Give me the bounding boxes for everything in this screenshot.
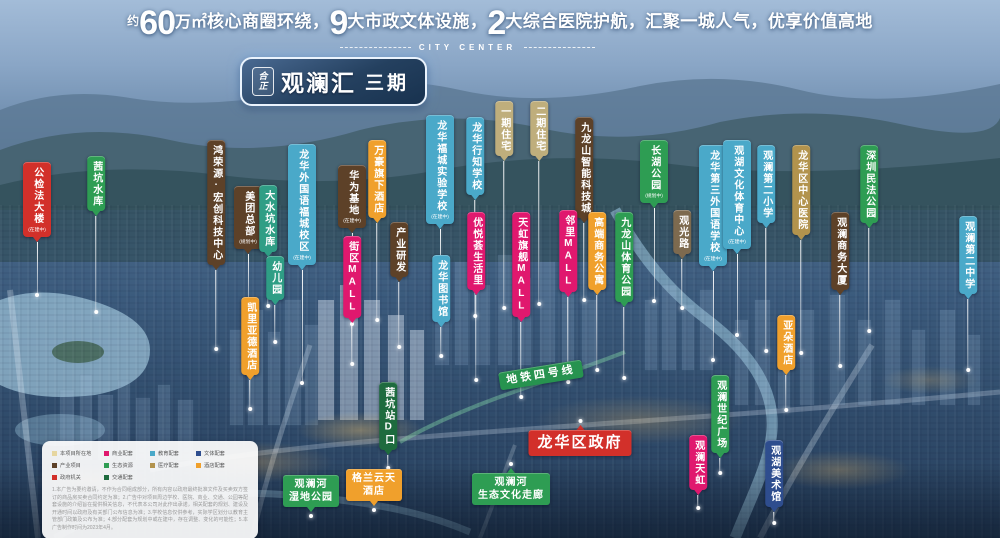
legend-color-swatch bbox=[52, 451, 57, 456]
map-pin: 观光路 bbox=[673, 210, 691, 310]
map-pin-leader-line bbox=[441, 327, 442, 355]
map-pin: 龙华外国语福城校区 (在建中) bbox=[288, 144, 316, 385]
legend-item: 本项目所在地 bbox=[52, 449, 104, 457]
headline-number-2: 2 bbox=[487, 4, 505, 42]
project-title-badge: 合 正 观澜汇 三期 bbox=[240, 57, 427, 106]
map-pin-anchor-dot bbox=[764, 349, 768, 353]
map-pin-text: 观湖美术馆 bbox=[768, 445, 780, 503]
legend-item: 教育配套 bbox=[150, 449, 196, 457]
map-pin-text: 观光路 bbox=[676, 215, 688, 250]
map-pin-anchor-dot bbox=[375, 318, 379, 322]
map-pin-leader-line bbox=[654, 208, 655, 300]
map-pin: 茜坑站D口 bbox=[379, 382, 397, 470]
map-pin: 一期住宅 bbox=[495, 101, 513, 310]
map-pin: 观澜天虹 bbox=[689, 435, 707, 510]
map-pin-anchor-dot bbox=[35, 293, 39, 297]
map-pin-text: 美团总部 bbox=[242, 191, 254, 237]
developer-logo: 合 正 bbox=[252, 67, 274, 96]
map-pin: 街区MALL bbox=[343, 236, 361, 366]
map-pin-leader-line bbox=[399, 282, 400, 346]
map-pin-leader-line bbox=[96, 216, 97, 311]
map-pin-subtext: (在建中) bbox=[728, 240, 746, 245]
legend-color-swatch bbox=[196, 451, 201, 456]
map-pin-anchor-dot bbox=[718, 471, 722, 475]
map-pin-anchor-dot bbox=[680, 306, 684, 310]
legend-color-swatch bbox=[104, 451, 109, 456]
map-pin-label: 观光路 bbox=[673, 210, 691, 254]
map-pin-label: 凯里亚德酒店 bbox=[241, 297, 259, 375]
map-pin-label: 观澜商务大厦 bbox=[831, 212, 849, 290]
headline-segment-3: 大综合医院护航，汇聚一城人气，优享价值高地 bbox=[505, 12, 873, 31]
map-pin-text: 鸿荣源·宏创科技中心 bbox=[210, 145, 222, 261]
map-pin-text: 优悦荟生活里 bbox=[470, 217, 482, 286]
map-pin-leader-line bbox=[539, 161, 540, 303]
map-pin-anchor-dot bbox=[784, 408, 788, 412]
legend-color-swatch bbox=[52, 475, 57, 480]
map-pin-label: 天虹旗舰MALL bbox=[512, 212, 530, 317]
map-pin-leader-line bbox=[786, 375, 787, 409]
map-pin-text: 龙华区中心医院 bbox=[795, 150, 807, 231]
map-pin-text: 公检法大楼 bbox=[31, 167, 43, 225]
map-pin-label: 九龙山智能科技城 bbox=[575, 117, 593, 218]
map-pin-label: 产业研发 bbox=[390, 222, 408, 277]
map-pin-text: 龙华第三外国语学校 bbox=[707, 150, 719, 254]
map-pin-leader-line bbox=[624, 307, 625, 377]
map-pin-leader-line bbox=[216, 270, 217, 348]
map-pin-subtext: (在建中) bbox=[28, 227, 46, 232]
map-pin-label: 万豪旗下酒店 bbox=[368, 140, 386, 218]
headline-segment-2: 大市政文体设施， bbox=[347, 12, 487, 31]
divider-dash-right bbox=[524, 47, 595, 48]
map-pin-subtext: (在建中) bbox=[343, 219, 361, 224]
map-pin-text: 观澜第二小学 bbox=[760, 150, 772, 219]
map-pin-label: 龙华行知学校 bbox=[466, 117, 484, 195]
legend-color-swatch bbox=[104, 475, 109, 480]
map-label-anchor-dot bbox=[509, 462, 513, 466]
map-pin-anchor-dot bbox=[595, 368, 599, 372]
map-pin-label: 观澜世纪广场 bbox=[711, 375, 729, 453]
map-pin-text: 龙华行知学校 bbox=[469, 122, 481, 191]
legend-panel: 本项目所在地 商业配套 教育配套 文体配套 产业项目 生态资源 bbox=[42, 441, 258, 538]
map-label: 龙华区政府 bbox=[528, 419, 631, 456]
map-pin: 长湖公园 (规划中) bbox=[640, 140, 668, 303]
city-center-divider: CITY CENTER bbox=[340, 43, 595, 52]
map-label: 格兰云天 酒店 bbox=[346, 469, 402, 512]
map-label-text: 龙华区政府 bbox=[528, 430, 631, 456]
map-pin-label: 幼儿园 bbox=[266, 256, 284, 300]
map-pin-text: 街区MALL bbox=[346, 241, 358, 314]
legend-item-label: 教育配套 bbox=[158, 449, 179, 457]
map-pin-leader-line bbox=[737, 254, 738, 334]
map-pin-leader-line bbox=[377, 223, 378, 319]
legend-color-swatch bbox=[52, 463, 57, 468]
map-pin-leader-line bbox=[302, 270, 303, 382]
map-label-text: 观澜河 湿地公园 bbox=[283, 475, 339, 507]
map-pin-label: 高端商务公寓 bbox=[588, 212, 606, 290]
map-pin-label: 观澜第二小学 bbox=[757, 145, 775, 223]
map-pin-label: 龙华图书馆 bbox=[432, 255, 450, 322]
map-pin-text: 深圳民法公园 bbox=[863, 150, 875, 219]
map-pin-leader-line bbox=[37, 242, 38, 294]
map-pin-label: 观湖文化体育中心 (在建中) bbox=[723, 140, 751, 249]
map-pin-leader-line bbox=[801, 240, 802, 352]
map-label-anchor-dot bbox=[372, 508, 376, 512]
map-pin: 茜坑水库 bbox=[87, 156, 105, 314]
legend-item: 文体配套 bbox=[196, 449, 240, 457]
map-pin-label: 九龙山体育公园 bbox=[615, 212, 633, 302]
headline-number-9: 9 bbox=[330, 4, 348, 42]
map-pin-anchor-dot bbox=[474, 378, 478, 382]
map-pin-label: 长湖公园 (规划中) bbox=[640, 140, 668, 203]
map-pin: 深圳民法公园 bbox=[860, 145, 878, 333]
legend-item: 产业项目 bbox=[52, 461, 104, 469]
map-pin-anchor-dot bbox=[838, 364, 842, 368]
map-pin-subtext: (规划中) bbox=[645, 194, 663, 199]
map-pin-anchor-dot bbox=[94, 310, 98, 314]
map-pin-text: 九龙山智能科技城 bbox=[578, 122, 590, 214]
legend-item-label: 商业配套 bbox=[112, 449, 133, 457]
map-pin-leader-line bbox=[869, 228, 870, 330]
map-label: 观澜河 生态文化走廊 bbox=[472, 462, 550, 505]
legend-item: 商业配套 bbox=[104, 449, 150, 457]
city-center-label: CITY CENTER bbox=[419, 43, 516, 52]
map-pin-anchor-dot bbox=[582, 298, 586, 302]
map-pin-label: 公检法大楼 (在建中) bbox=[23, 162, 51, 237]
map-pin-label: 观澜天虹 bbox=[689, 435, 707, 490]
map-pin: 万豪旗下酒店 bbox=[368, 140, 386, 322]
map-pin-text: 万豪旗下酒店 bbox=[371, 145, 383, 214]
map-label-text: 格兰云天 酒店 bbox=[346, 469, 402, 501]
map-pin-text: 观澜第二中学 bbox=[962, 221, 974, 290]
map-pin-text: 龙华外国语福城校区 bbox=[296, 149, 308, 253]
map-pin-label: 观湖美术馆 bbox=[765, 440, 783, 507]
project-phase: 三期 bbox=[365, 68, 409, 95]
legend-color-swatch bbox=[150, 451, 155, 456]
map-label-pointer-down bbox=[370, 501, 378, 506]
map-pin-subtext: (在建中) bbox=[293, 255, 311, 260]
map-pin-label: 茜坑水库 bbox=[87, 156, 105, 211]
map-pin-anchor-dot bbox=[537, 302, 541, 306]
map-pin-anchor-dot bbox=[799, 351, 803, 355]
map-pin-text: 龙华图书馆 bbox=[435, 260, 447, 318]
map-pin-subtext: (在建中) bbox=[704, 256, 722, 261]
map-pin-leader-line bbox=[720, 458, 721, 472]
map-pin-leader-line bbox=[476, 295, 477, 379]
map-pin-subtext: (在建中) bbox=[431, 215, 449, 220]
legend-color-swatch bbox=[104, 463, 109, 468]
map-pin-anchor-dot bbox=[696, 506, 700, 510]
map-pin-text: 长湖公园 bbox=[648, 145, 660, 191]
map-pin: 公检法大楼 (在建中) bbox=[23, 162, 51, 297]
legend-item-label: 交通配套 bbox=[112, 473, 133, 481]
map-pin-text: 邻里MALL bbox=[562, 215, 574, 288]
map-pin-label: 龙华外国语福城校区 (在建中) bbox=[288, 144, 316, 265]
map-pin-label: 大水坑水库 bbox=[259, 185, 277, 252]
map-pin-anchor-dot bbox=[350, 362, 354, 366]
legend-item: 医疗配套 bbox=[150, 461, 196, 469]
headline: 约60万㎡核心商圈环绕，9大市政文体设施，2大综合医院护航，汇聚一城人气，优享价… bbox=[0, 4, 1000, 43]
map-pin-text: 天虹旗舰MALL bbox=[515, 217, 527, 313]
map-pin: 观澜商务大厦 bbox=[831, 212, 849, 368]
map-pin-text: 华为基地 bbox=[346, 170, 358, 216]
map-pin-label: 美团总部 (规划中) bbox=[234, 186, 262, 249]
map-pin-label: 深圳民法公园 bbox=[860, 145, 878, 223]
map-pin: 产业研发 bbox=[390, 222, 408, 349]
map-pin: 高端商务公寓 bbox=[588, 212, 606, 372]
legend-grid: 本项目所在地 商业配套 教育配套 文体配套 产业项目 生态资源 bbox=[52, 449, 248, 481]
map-pin-anchor-dot bbox=[519, 395, 523, 399]
map-pin-label: 龙华福城实验学校 (在建中) bbox=[426, 115, 454, 224]
map-pin: 邻里MALL bbox=[559, 210, 577, 384]
map-pin-leader-line bbox=[713, 271, 714, 359]
map-pin-text: 观澜商务大厦 bbox=[834, 217, 846, 286]
map-pin: 龙华图书馆 bbox=[432, 255, 450, 358]
map-pin-leader-line bbox=[250, 380, 251, 408]
map-pin-text: 观澜世纪广场 bbox=[714, 380, 726, 449]
map-pin-text: 九龙山体育公园 bbox=[618, 217, 630, 298]
project-name: 观澜汇 bbox=[281, 64, 356, 98]
real-estate-promo-map: 约60万㎡核心商圈环绕，9大市政文体设施，2大综合医院护航，汇聚一城人气，优享价… bbox=[0, 0, 1000, 538]
map-pin-leader-line bbox=[504, 161, 505, 307]
legend-item-label: 本项目所在地 bbox=[60, 449, 91, 457]
map-label-anchor-dot bbox=[578, 419, 582, 423]
logo-char-top: 合 bbox=[258, 71, 267, 81]
map-pin: 观澜第二中学 bbox=[959, 216, 977, 372]
legend-item-label: 医疗配套 bbox=[158, 461, 179, 469]
map-pin-anchor-dot bbox=[397, 345, 401, 349]
map-pin-label: 鸿荣源·宏创科技中心 bbox=[207, 140, 225, 265]
map-pin-anchor-dot bbox=[502, 306, 506, 310]
map-pin-anchor-dot bbox=[652, 299, 656, 303]
map-pin-anchor-dot bbox=[966, 368, 970, 372]
headline-unit: 万㎡ bbox=[175, 14, 207, 31]
map-pin: 观澜第二小学 bbox=[757, 145, 775, 353]
map-pin-leader-line bbox=[597, 295, 598, 369]
map-pin-leader-line bbox=[682, 259, 683, 307]
legend-item-label: 生态资源 bbox=[112, 461, 133, 469]
map-label-anchor-dot bbox=[309, 514, 313, 518]
map-pin-label: 一期住宅 bbox=[495, 101, 513, 156]
divider-dash-left bbox=[340, 47, 411, 48]
map-pin-leader-line bbox=[388, 455, 389, 467]
headline-segment-1: 核心商圈环绕， bbox=[207, 12, 330, 31]
map-pin-text: 凯里亚德酒店 bbox=[244, 302, 256, 371]
legend-item: 交通配套 bbox=[104, 473, 150, 481]
map-pin-label: 龙华区中心医院 bbox=[792, 145, 810, 235]
map-pin-anchor-dot bbox=[867, 329, 871, 333]
legend-item-label: 产业项目 bbox=[60, 461, 81, 469]
map-pin-leader-line bbox=[352, 323, 353, 363]
map-pin-anchor-dot bbox=[711, 358, 715, 362]
map-pin-text: 亚朵酒店 bbox=[780, 320, 792, 366]
map-pin-text: 一期住宅 bbox=[498, 106, 510, 152]
map-pin-label: 茜坑站D口 bbox=[379, 382, 397, 450]
map-pin: 凯里亚德酒店 bbox=[241, 297, 259, 411]
legend-color-swatch bbox=[196, 463, 201, 468]
map-pin-leader-line bbox=[766, 228, 767, 350]
map-pin-leader-line bbox=[275, 305, 276, 341]
map-pin-text: 茜坑站D口 bbox=[382, 387, 394, 446]
map-pin-label: 邻里MALL bbox=[559, 210, 577, 292]
logo-char-bottom: 正 bbox=[258, 81, 267, 91]
map-pin-anchor-dot bbox=[300, 381, 304, 385]
map-pin-leader-line bbox=[968, 299, 969, 369]
map-pin-anchor-dot bbox=[566, 380, 570, 384]
map-pin-anchor-dot bbox=[439, 354, 443, 358]
legend-item-label: 政府机关 bbox=[60, 473, 81, 481]
map-pin-leader-line bbox=[840, 295, 841, 365]
map-label-text: 观澜河 生态文化走廊 bbox=[472, 473, 550, 505]
map-pin: 优悦荟生活里 bbox=[467, 212, 485, 382]
map-pin: 观湖文化体育中心 (在建中) bbox=[723, 140, 751, 337]
map-pin-anchor-dot bbox=[273, 340, 277, 344]
legend-item: 政府机关 bbox=[52, 473, 104, 481]
map-pin-anchor-dot bbox=[248, 407, 252, 411]
map-pin: 九龙山体育公园 bbox=[615, 212, 633, 380]
map-label-pointer-down bbox=[307, 507, 315, 512]
map-pin-label: 二期住宅 bbox=[530, 101, 548, 156]
map-pin-text: 二期住宅 bbox=[533, 106, 545, 152]
map-label: 观澜河 湿地公园 bbox=[283, 475, 339, 518]
map-pin-anchor-dot bbox=[622, 376, 626, 380]
map-pin-label: 亚朵酒店 bbox=[777, 315, 795, 370]
legend-color-swatch bbox=[150, 463, 155, 468]
headline-number-60: 60 bbox=[139, 4, 175, 42]
map-pin-label: 优悦荟生活里 bbox=[467, 212, 485, 290]
map-pin: 观澜世纪广场 bbox=[711, 375, 729, 475]
map-pin-label: 街区MALL bbox=[343, 236, 361, 318]
map-pin: 龙华区中心医院 bbox=[792, 145, 810, 355]
map-pin-text: 产业研发 bbox=[393, 227, 405, 273]
map-pin: 二期住宅 bbox=[530, 101, 548, 306]
map-pin-text: 观湖文化体育中心 bbox=[731, 145, 743, 237]
map-pin-text: 幼儿园 bbox=[269, 261, 281, 296]
headline-prefix: 约 bbox=[127, 14, 139, 28]
map-pin-text: 观澜天虹 bbox=[692, 440, 704, 486]
map-pin-text: 高端商务公寓 bbox=[591, 217, 603, 286]
map-pin-subtext: (规划中) bbox=[239, 240, 257, 245]
map-pin: 鸿荣源·宏创科技中心 bbox=[207, 140, 225, 351]
legend-item: 生态资源 bbox=[104, 461, 150, 469]
map-pin-anchor-dot bbox=[772, 521, 776, 525]
disclaimer-text: 1.本广告为要约邀请，不作为合同组成部分，所有内容以政府最终批准文件及买卖双方签… bbox=[52, 487, 248, 532]
legend-item-label: 文体配套 bbox=[204, 449, 225, 457]
legend-item: 酒店配套 bbox=[196, 461, 240, 469]
map-pin-label: 观澜第二中学 bbox=[959, 216, 977, 294]
map-pin-anchor-dot bbox=[735, 333, 739, 337]
map-pin-text: 大水坑水库 bbox=[262, 190, 274, 248]
map-pin: 亚朵酒店 bbox=[777, 315, 795, 412]
map-pin-anchor-dot bbox=[214, 347, 218, 351]
map-pin-text: 茜坑水库 bbox=[90, 161, 102, 207]
map-pin: 幼儿园 bbox=[266, 256, 284, 344]
map-pin-text: 龙华福城实验学校 bbox=[434, 120, 446, 212]
map-pin: 美团总部 (规划中) bbox=[234, 186, 262, 307]
map-pin-label: 华为基地 (在建中) bbox=[338, 165, 366, 228]
map-pin-leader-line bbox=[584, 223, 585, 299]
map-pin: 观湖美术馆 bbox=[765, 440, 783, 525]
legend-item-label: 酒店配套 bbox=[204, 461, 225, 469]
